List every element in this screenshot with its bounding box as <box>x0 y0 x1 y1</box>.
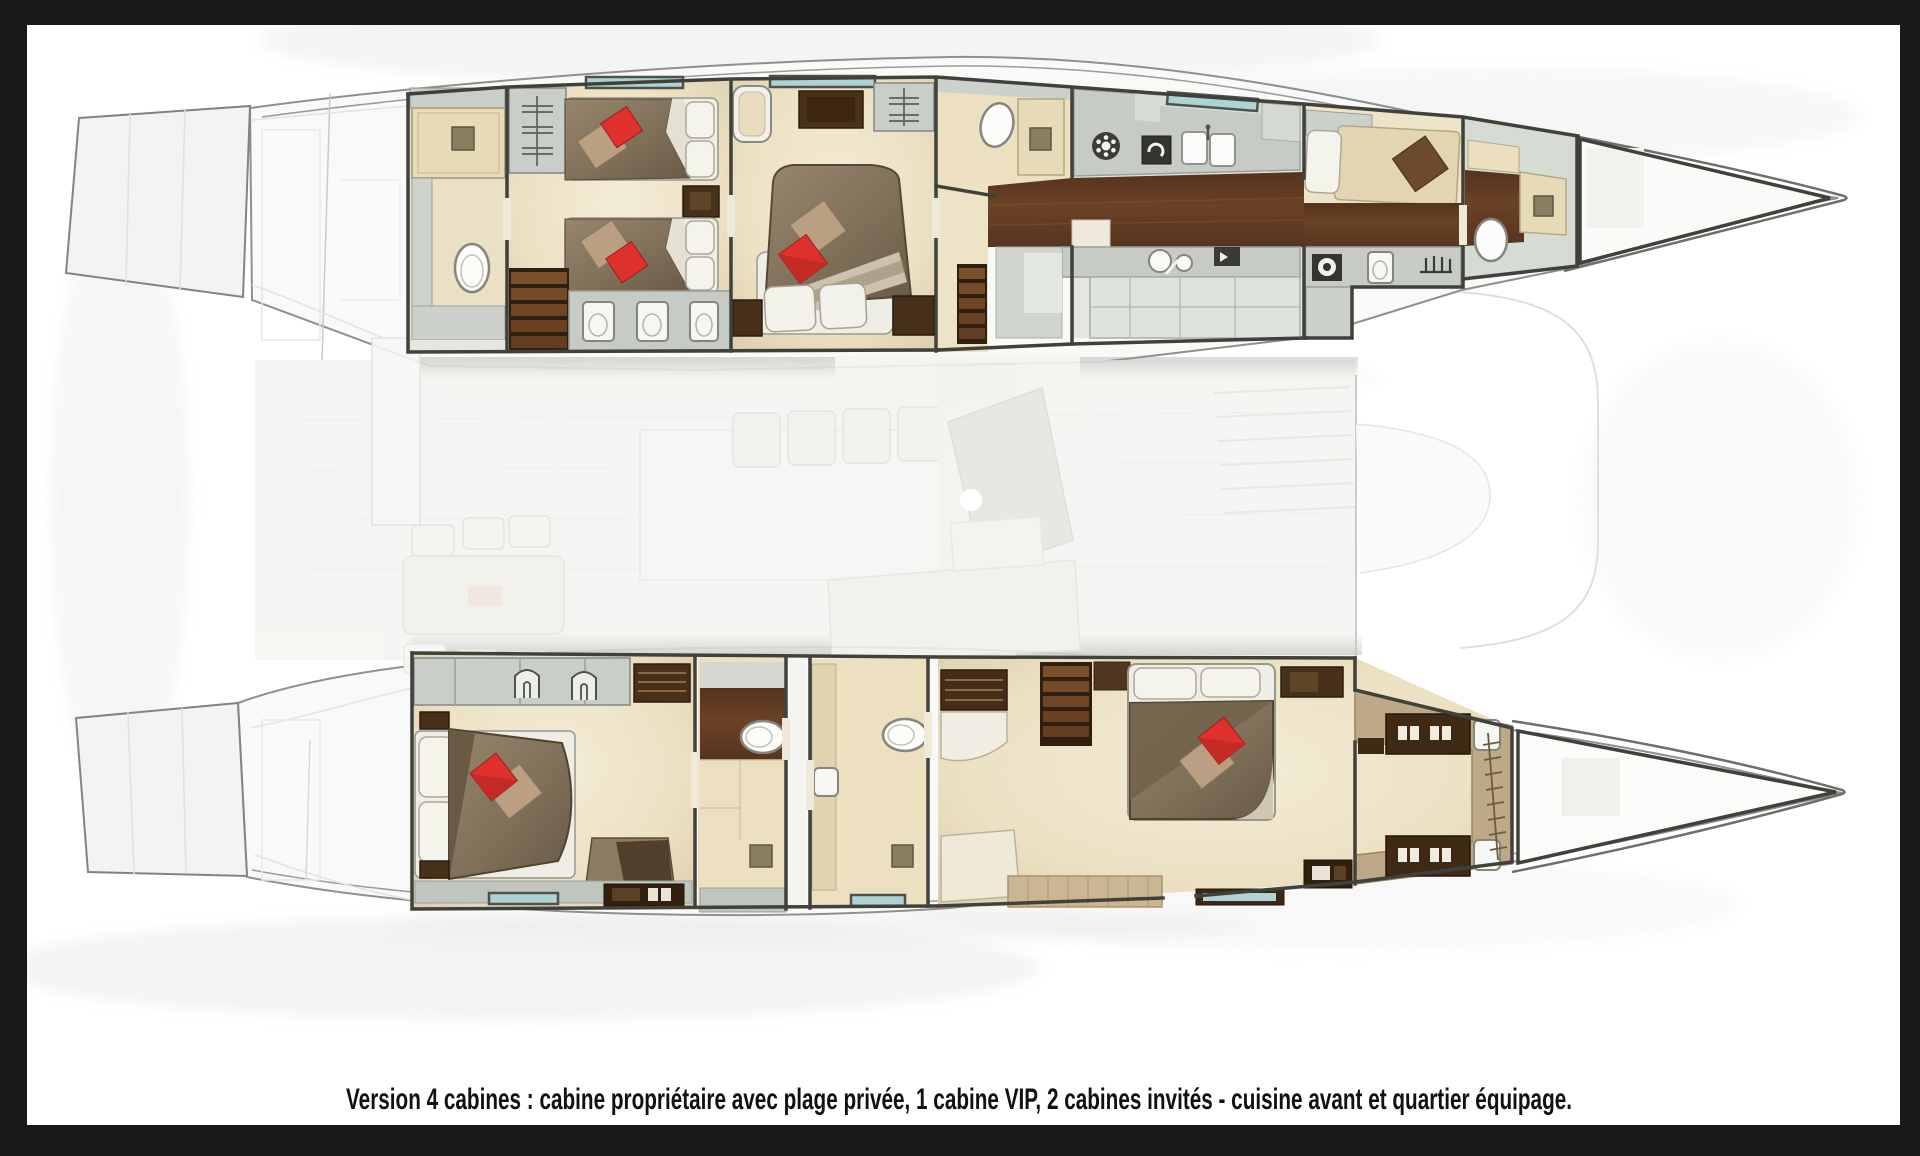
svg-text:Version 4 cabines : cabine pro: Version 4 cabines : cabine propriétaire … <box>346 1083 1572 1116</box>
